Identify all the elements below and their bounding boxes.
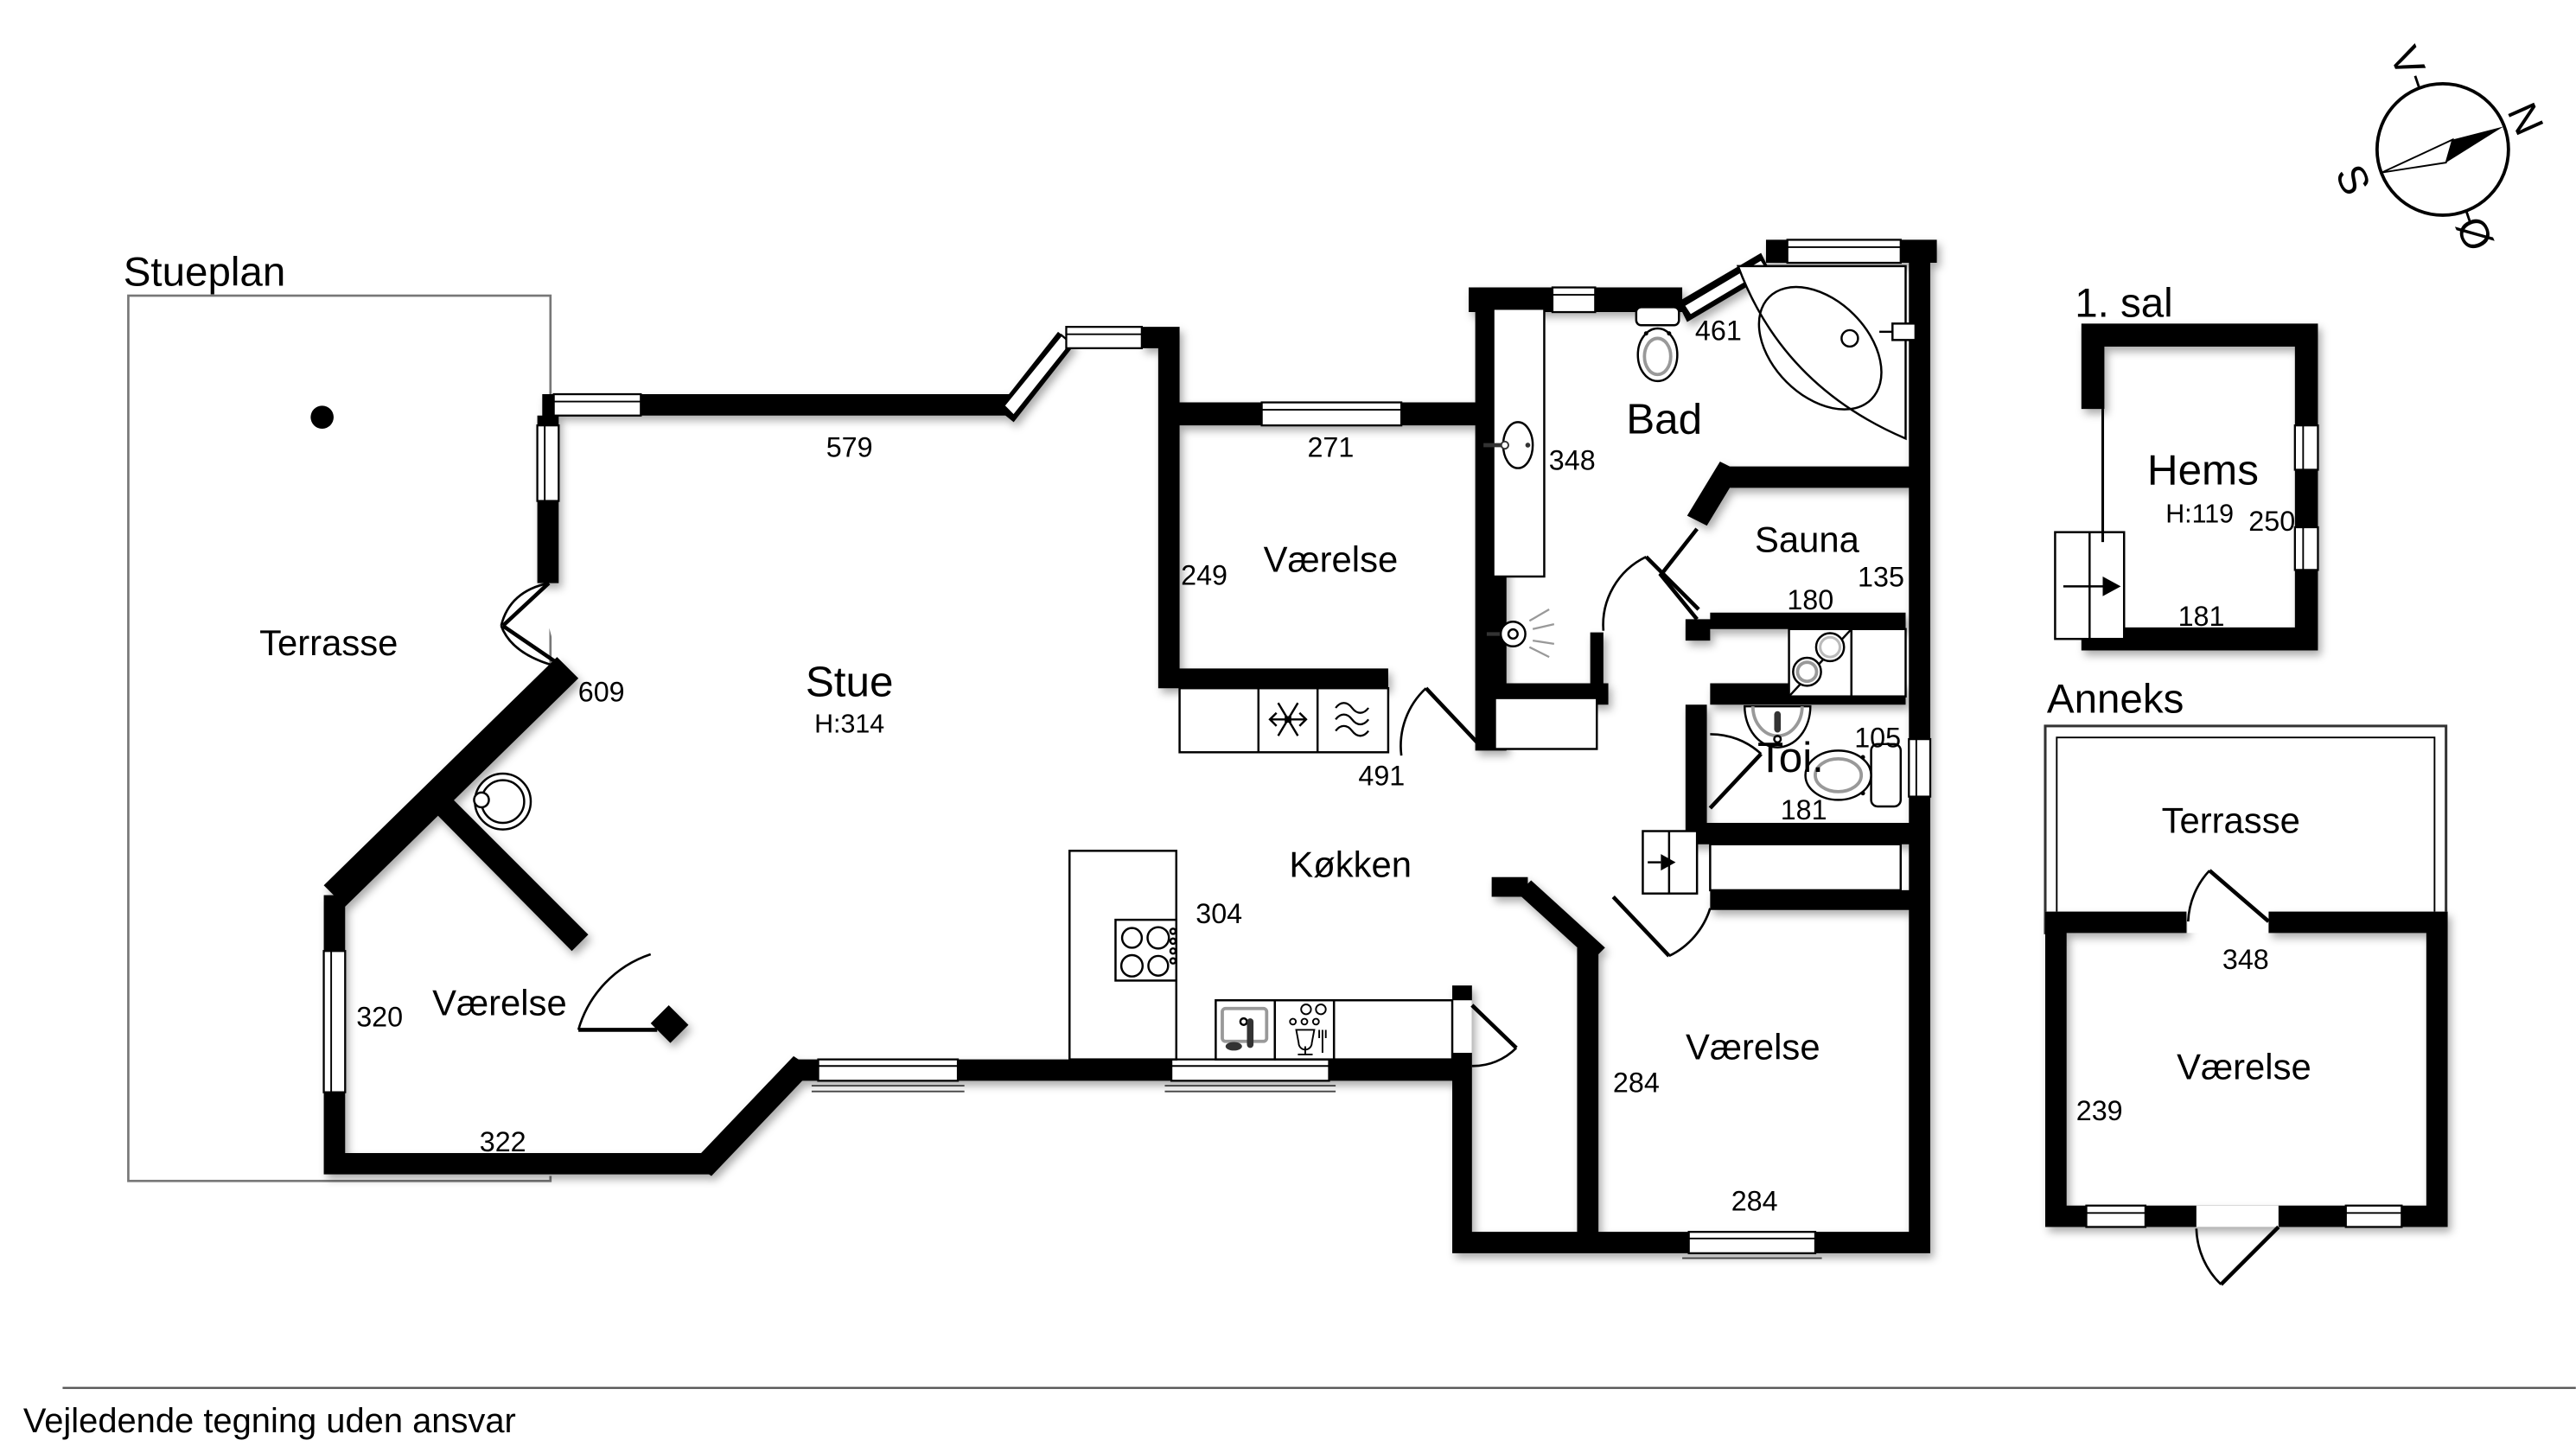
utility-cabinet	[1852, 629, 1906, 697]
vanity-bad	[1483, 309, 1544, 577]
terrace-post-dot	[310, 405, 334, 429]
door-annex-room-leaf	[2221, 1227, 2279, 1284]
dim-annex-terrasse: 348	[2222, 944, 2269, 975]
label-terrasse: Terrasse	[259, 622, 398, 663]
label-sauna: Sauna	[1755, 519, 1860, 559]
dim-stue-door: 609	[578, 676, 625, 707]
kitchen-counter-right	[1334, 1000, 1452, 1059]
window-bad-left	[1553, 288, 1595, 313]
label-annex-terrasse: Terrasse	[2162, 800, 2300, 840]
window-vaerelse-mid	[1262, 403, 1402, 426]
floor-plan-canvas: V N S Ø Stueplan Terrasse Stue H:314 579…	[0, 0, 2576, 1449]
loft-ladder-icon	[1642, 832, 1697, 894]
dim-stue-ceiling: H:314	[814, 710, 884, 739]
dim-toi-bottom: 181	[1781, 794, 1827, 825]
cooktop-icon	[1115, 920, 1176, 980]
window-vaerelse-se	[1689, 1232, 1815, 1253]
window-jog-top	[1066, 327, 1141, 348]
wardrobe-se	[1710, 844, 1900, 890]
dim-hems-bottom: 181	[2178, 601, 2225, 632]
label-vaerelse-sw: Værelse	[432, 982, 567, 1023]
window-bad-top	[1788, 239, 1901, 263]
wood-stove-icon	[474, 774, 531, 830]
hall-closet	[1495, 698, 1597, 749]
label-bad: Bad	[1626, 396, 1702, 443]
compass-needle-south	[2382, 140, 2453, 173]
window-hems-1	[2295, 425, 2318, 469]
dim-sauna-bottom: 180	[1787, 584, 1833, 615]
dim-vaerelse-mid-left: 249	[1181, 559, 1227, 590]
label-vaerelse-mid: Værelse	[1264, 539, 1399, 579]
first-floor-title: 1. sal	[2075, 281, 2173, 327]
dim-vaerelse-se-bottom: 284	[1731, 1185, 1778, 1216]
label-stue: Stue	[806, 659, 894, 706]
label-koekken: Køkken	[1289, 844, 1412, 885]
window-stue-top	[554, 394, 641, 416]
dim-koekken: 304	[1196, 898, 1242, 929]
dim-sauna-right: 135	[1858, 561, 1904, 592]
annex-title: Anneks	[2047, 677, 2184, 723]
dim-vaerelse-mid-bottom: 491	[1358, 760, 1405, 791]
window-south-1	[819, 1060, 959, 1081]
page-title: Stueplan	[124, 250, 286, 296]
dim-vaerelse-mid-top: 271	[1307, 431, 1354, 462]
window-annex-1	[2087, 1206, 2146, 1227]
dim-toi-top: 105	[1854, 723, 1901, 754]
window-vaerelse-sw	[324, 951, 346, 1092]
dim-bad-top: 461	[1695, 315, 1742, 346]
dim-hems-right: 250	[2248, 506, 2295, 537]
footer: Vejledende tegning uden ansvar	[23, 1388, 2576, 1440]
door-gap-annex-terrace	[2187, 912, 2267, 934]
compass-west-label: V	[2381, 40, 2433, 84]
dim-vaerelse-sw-left: 320	[356, 1002, 403, 1033]
washer-dryer-icon	[1789, 629, 1852, 697]
window-hems-2	[2295, 527, 2318, 570]
dim-bad-left: 348	[1549, 444, 1596, 475]
dim-stue-top: 579	[826, 431, 873, 462]
label-toi: Toi.	[1757, 734, 1824, 781]
label-annex-vaerelse: Værelse	[2177, 1046, 2311, 1087]
door-gap-annex-room	[2197, 1206, 2279, 1227]
dim-annex-vaerelse: 239	[2076, 1095, 2123, 1126]
hems-stair-icon	[2055, 532, 2124, 640]
window-stue-left	[538, 425, 559, 500]
compass-south-label: S	[2326, 158, 2379, 202]
dim-hems-ceiling: H:119	[2165, 499, 2234, 528]
window-annex-2	[2346, 1206, 2402, 1227]
door-annex-room-arc	[2197, 1228, 2222, 1284]
label-vaerelse-se: Værelse	[1686, 1027, 1820, 1067]
toilet-bad-icon	[1636, 307, 1679, 381]
window-toi-right	[1909, 739, 1930, 797]
label-hems: Hems	[2147, 447, 2259, 494]
footer-disclaimer: Vejledende tegning uden ansvar	[23, 1402, 516, 1440]
dim-vaerelse-sw-bottom: 322	[480, 1126, 526, 1157]
compass-needle-north	[2446, 126, 2504, 163]
window-south-2	[1171, 1060, 1329, 1081]
door-gap-entrance	[1452, 1000, 1472, 1053]
compass-rose: V N S Ø	[2326, 40, 2552, 258]
compass-east-label: Ø	[2446, 210, 2501, 258]
floor-plan-page: V N S Ø Stueplan Terrasse Stue H:314 579…	[0, 0, 2576, 1449]
dim-vaerelse-se-left: 284	[1613, 1067, 1660, 1099]
